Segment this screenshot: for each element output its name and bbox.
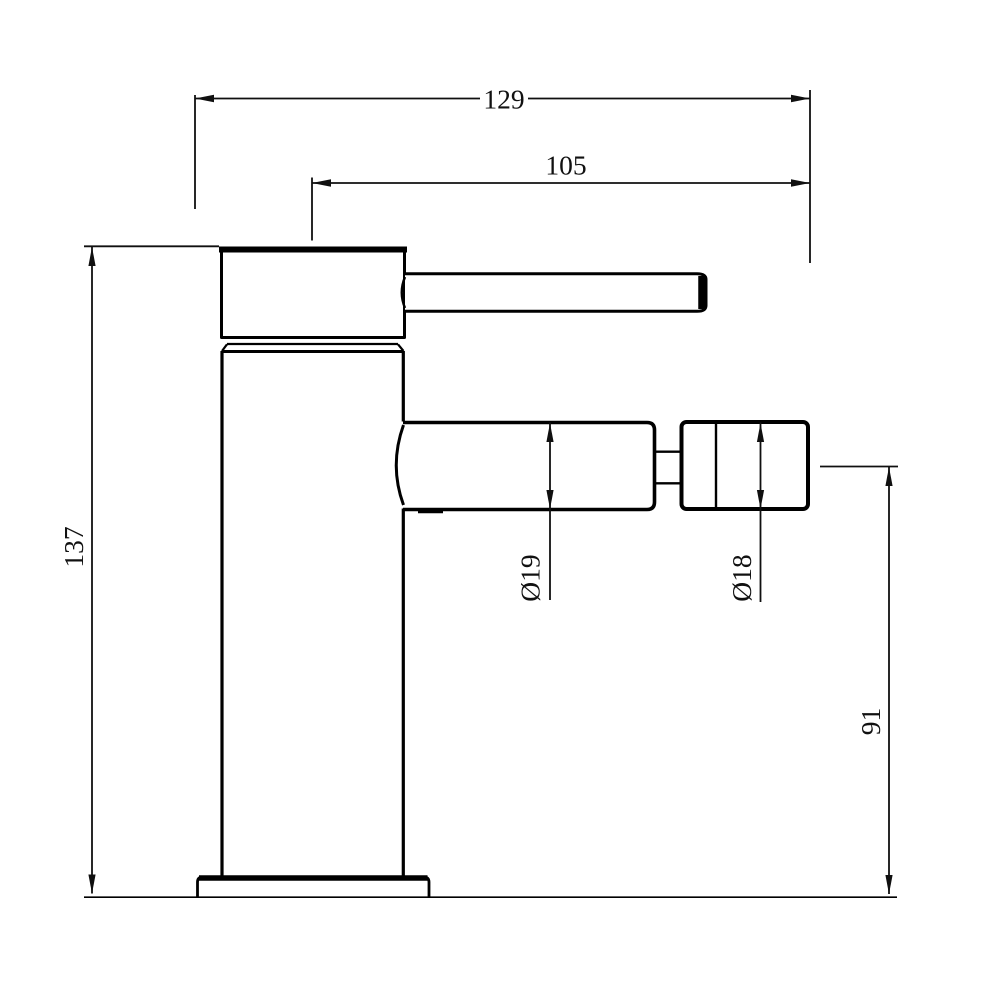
arrowhead-right-105 [791,179,810,186]
dim-label-nozzle-diameter: Ø18 [726,554,757,601]
dim-label-spout-diameter: Ø19 [515,554,546,601]
arrowhead-left-129 [195,95,214,102]
spout-body [403,423,655,510]
arrowhead-right-129 [791,95,810,102]
faucet-outline [84,249,897,897]
arrowhead-left-105 [312,179,331,186]
dimension-spout-reach: 105 [312,150,810,241]
dimension-outlet-height: 91 [820,467,898,895]
faucet-dimension-drawing: 129 105 137 91 [0,0,999,999]
spout-fillet-arc [396,425,403,505]
handle-lever [405,274,706,312]
spray-nozzle [682,422,809,509]
dim-label-overall-height: 137 [58,526,89,567]
cartridge-cap [222,249,405,338]
arrowhead-top-91 [885,467,892,486]
dim-label-spout-reach: 105 [545,150,586,181]
technical-drawing-canvas: 129 105 137 91 [0,0,999,999]
arrowhead-bottom-137 [88,875,95,894]
neck-collar-sides [222,344,404,351]
connector-stub [655,452,681,484]
arrowhead-top-137 [88,247,95,266]
dimension-overall-height: 137 [58,246,219,893]
dim-label-total-length: 129 [483,84,524,115]
dimension-total-length: 129 [195,84,810,264]
dim-label-outlet-height: 91 [855,708,886,736]
arrowhead-bottom-91 [885,875,892,894]
